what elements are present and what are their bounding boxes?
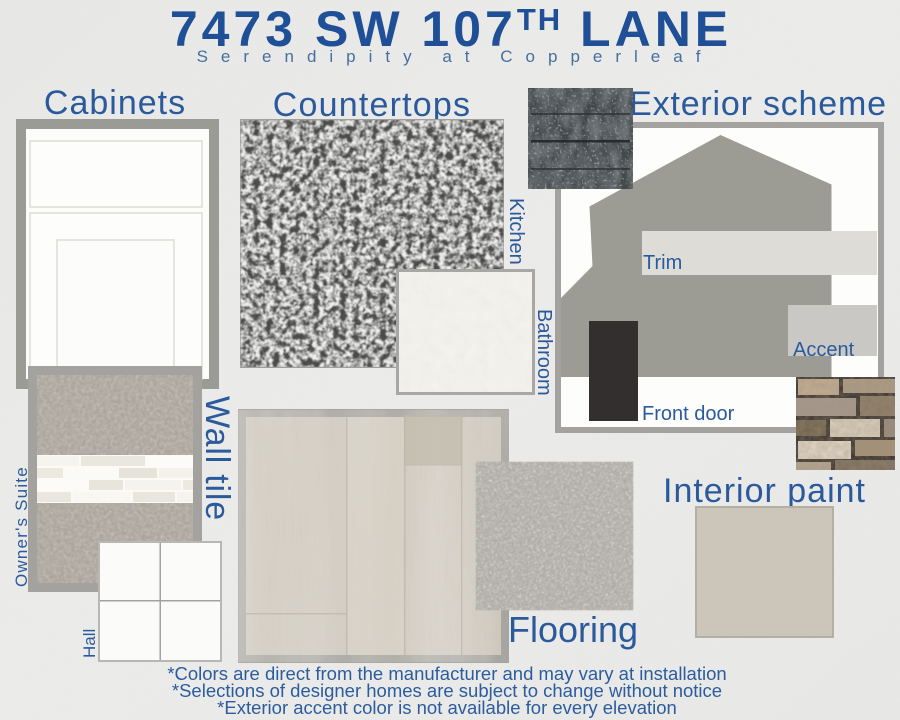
- svg-text:Exterior scheme: Exterior scheme: [629, 85, 887, 123]
- svg-text:Hall: Hall: [80, 629, 99, 658]
- svg-text:Kitchen: Kitchen: [505, 198, 527, 265]
- svg-text:Owner's Suite: Owner's Suite: [12, 466, 31, 587]
- svg-text:Interior paint: Interior paint: [663, 472, 866, 510]
- svg-text:Trim: Trim: [643, 252, 682, 274]
- svg-text:Flooring: Flooring: [508, 609, 638, 650]
- svg-text:Countertops: Countertops: [273, 86, 471, 124]
- svg-text:Serendipity at Copperleaf: Serendipity at Copperleaf: [197, 47, 714, 66]
- svg-text:Cabinets: Cabinets: [44, 84, 186, 122]
- svg-text:*Exterior accent color is not: *Exterior accent color is not available …: [217, 697, 677, 718]
- svg-text:Wall tile: Wall tile: [198, 396, 236, 521]
- svg-text:Front door: Front door: [642, 403, 735, 425]
- svg-text:Accent: Accent: [793, 339, 855, 361]
- svg-text:Bathroom: Bathroom: [533, 309, 555, 396]
